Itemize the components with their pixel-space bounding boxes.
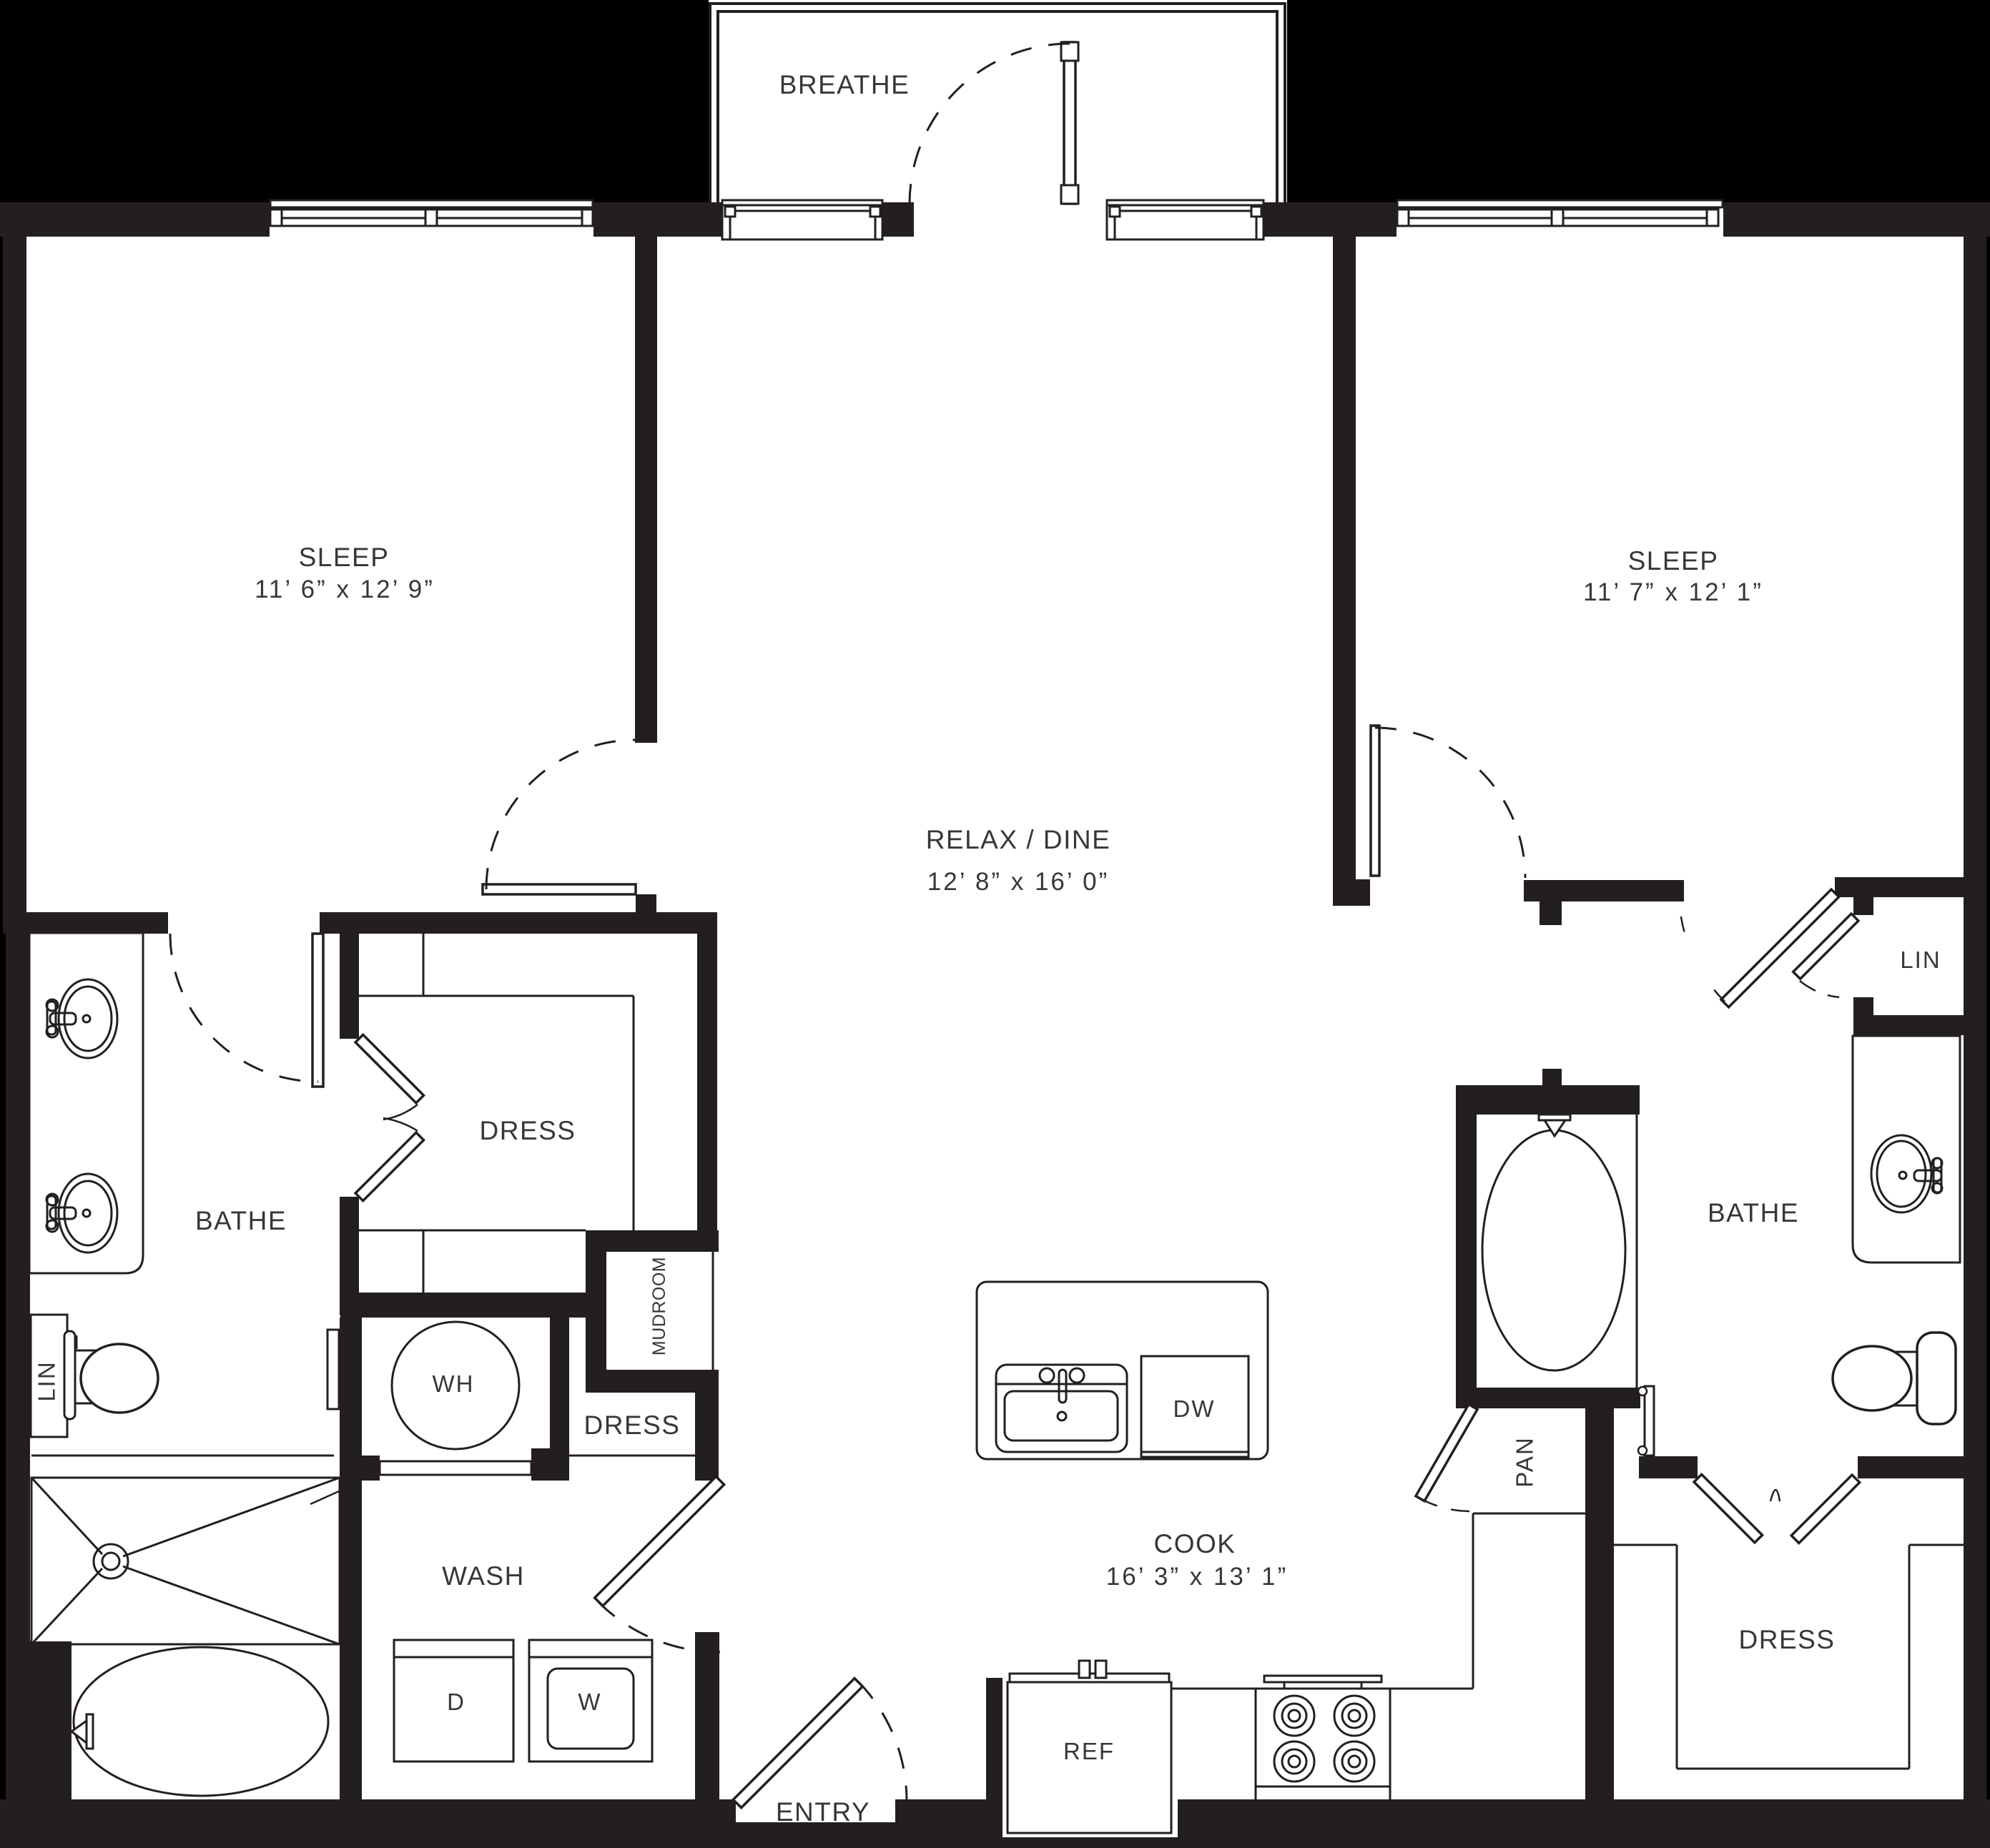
svg-text:MUDROOM: MUDROOM xyxy=(649,1257,669,1355)
svg-text:11’ 6” x 12’ 9”: 11’ 6” x 12’ 9” xyxy=(255,575,435,603)
svg-text:RELAX / DINE: RELAX / DINE xyxy=(926,825,1111,854)
svg-text:LIN: LIN xyxy=(34,1360,60,1401)
svg-text:COOK: COOK xyxy=(1154,1529,1236,1558)
svg-text:W: W xyxy=(578,1689,601,1715)
svg-text:SLEEP: SLEEP xyxy=(299,543,390,572)
svg-text:D: D xyxy=(447,1689,466,1715)
svg-text:REF: REF xyxy=(1063,1738,1115,1764)
svg-text:BATHE: BATHE xyxy=(195,1206,287,1235)
svg-text:BREATHE: BREATHE xyxy=(779,70,910,99)
svg-text:ENTRY: ENTRY xyxy=(776,1797,870,1827)
svg-text:DW: DW xyxy=(1173,1395,1216,1422)
svg-text:12’ 8” x 16’ 0”: 12’ 8” x 16’ 0” xyxy=(927,868,1109,896)
svg-text:DRESS: DRESS xyxy=(480,1116,576,1145)
svg-text:DRESS: DRESS xyxy=(584,1410,681,1440)
svg-text:16’ 3” x 13’ 1”: 16’ 3” x 13’ 1” xyxy=(1106,1563,1288,1591)
svg-text:11’ 7” x 12’ 1”: 11’ 7” x 12’ 1” xyxy=(1583,578,1763,606)
svg-text:DRESS: DRESS xyxy=(1739,1625,1836,1654)
svg-text:BATHE: BATHE xyxy=(1708,1198,1799,1227)
svg-text:LIN: LIN xyxy=(1900,947,1941,973)
svg-text:SLEEP: SLEEP xyxy=(1628,546,1719,575)
svg-text:WH: WH xyxy=(433,1370,475,1397)
svg-text:PAN: PAN xyxy=(1512,1436,1538,1487)
svg-text:WASH: WASH xyxy=(442,1561,525,1591)
